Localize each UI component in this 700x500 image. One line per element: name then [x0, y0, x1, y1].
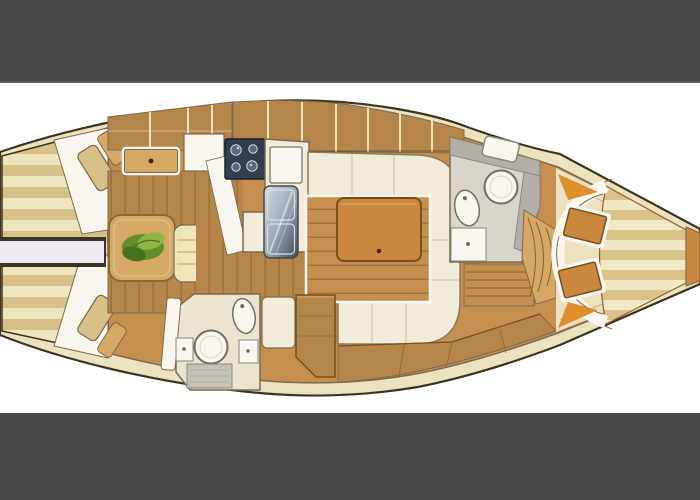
counter-sink-square	[270, 147, 302, 183]
saloon-table	[337, 198, 421, 261]
burner-glint	[237, 147, 240, 150]
locker-knob	[246, 349, 250, 353]
letterbox-bottom-bar	[0, 413, 700, 500]
burner	[231, 145, 241, 155]
aft-head-sink	[485, 171, 518, 204]
mid-cushion-seat	[262, 297, 295, 348]
drawer-knob	[149, 159, 154, 164]
head-sink	[195, 331, 228, 364]
yacht-floorplan-image	[0, 0, 700, 500]
burner	[249, 145, 257, 153]
forward-drawer	[123, 148, 179, 174]
step-treads-block	[464, 264, 534, 306]
transom-cap	[686, 227, 700, 286]
plant-table	[109, 215, 175, 281]
table-knob	[377, 249, 382, 254]
locker-knob	[182, 347, 186, 351]
stove	[225, 139, 265, 179]
burner	[247, 161, 257, 171]
letterbox-top-bar	[0, 0, 700, 83]
double-sink	[264, 186, 298, 258]
screenshot-stage	[0, 0, 700, 500]
seat-knob	[466, 242, 470, 246]
letterbox-top-edge	[0, 81, 700, 83]
burner-glint	[250, 164, 253, 167]
bow-anchor-channel	[0, 237, 106, 267]
burner	[232, 163, 240, 171]
